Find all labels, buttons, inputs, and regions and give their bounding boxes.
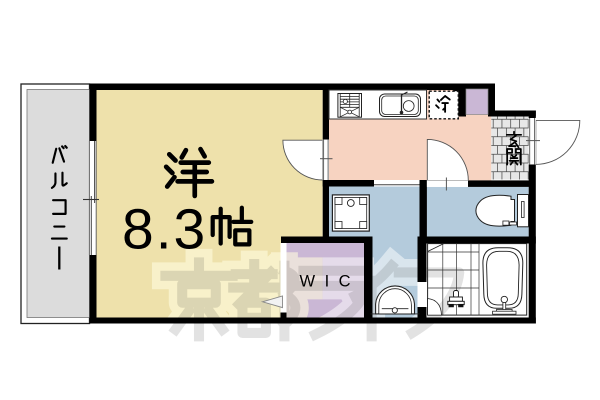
svg-text:8.3: 8.3: [122, 198, 207, 262]
svg-text:WIC: WIC: [300, 273, 361, 291]
